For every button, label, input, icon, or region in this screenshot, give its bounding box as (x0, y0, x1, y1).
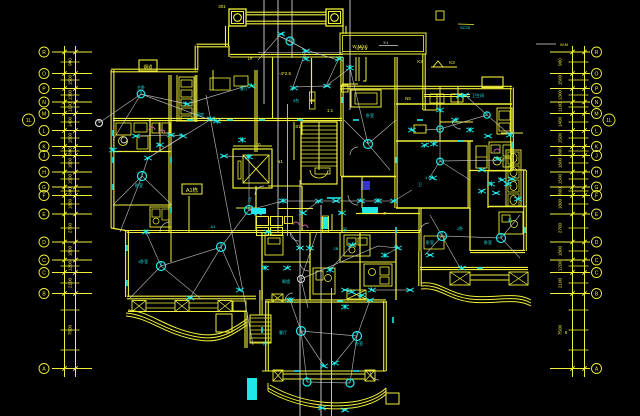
svg-text:1500: 1500 (558, 132, 563, 143)
svg-text:D: D (595, 240, 599, 246)
svg-text:1800: 1800 (558, 245, 563, 256)
svg-text:D: D (42, 240, 46, 246)
svg-text:卧室: 卧室 (355, 340, 363, 346)
svg-text:W.M: W.M (560, 42, 568, 47)
svg-text:7500: 7500 (558, 324, 563, 335)
svg-text:N: N (595, 100, 599, 106)
svg-text:H: H (42, 170, 46, 176)
svg-text:2卧: 2卧 (457, 225, 463, 231)
svg-text:1500: 1500 (558, 173, 563, 184)
svg-text:1500: 1500 (68, 173, 73, 184)
svg-text:-4*2.5: -4*2.5 (355, 46, 368, 51)
svg-text:800: 800 (558, 147, 563, 155)
svg-text:C: C (595, 271, 599, 277)
svg-text:卧室: 卧室 (484, 239, 492, 245)
svg-text:3台: 3台 (293, 97, 299, 103)
svg-text:主卧: 主卧 (137, 84, 145, 90)
svg-text:卧室: 卧室 (135, 182, 143, 188)
svg-text:2100: 2100 (68, 277, 73, 288)
svg-text:A1栋: A1栋 (186, 186, 199, 194)
svg-text:1100: 1100 (558, 102, 563, 112)
svg-text:1300: 1300 (558, 89, 563, 100)
svg-text:1卧室: 1卧室 (138, 258, 148, 264)
svg-text:800: 800 (68, 187, 73, 195)
svg-text:900: 900 (558, 58, 563, 66)
svg-text:厨: 厨 (343, 226, 347, 232)
svg-text:客厅: 客厅 (240, 85, 248, 91)
svg-text:1800: 1800 (558, 198, 563, 209)
svg-text:K3: K3 (449, 60, 455, 65)
svg-text:1400: 1400 (68, 116, 73, 127)
svg-text:1600: 1600 (68, 157, 73, 168)
svg-text:301: 301 (218, 4, 226, 9)
svg-text:N: N (42, 100, 46, 106)
svg-text:C: C (42, 271, 46, 277)
svg-text:1100: 1100 (68, 102, 73, 112)
svg-text:卫生间: 卫生间 (472, 92, 484, 98)
svg-text:S1: S1 (295, 124, 301, 129)
svg-text:2B: 2B (334, 246, 339, 251)
svg-text:F: F (595, 194, 598, 200)
svg-text:O: O (595, 72, 599, 78)
svg-text:2100: 2100 (558, 277, 563, 288)
svg-text:卫: 卫 (418, 182, 422, 187)
svg-text:厨: 厨 (508, 217, 512, 223)
svg-text:7500: 7500 (68, 324, 73, 335)
svg-text:卧室: 卧室 (366, 112, 374, 118)
svg-text:K2: K2 (417, 59, 423, 64)
svg-text:-4*2.5: -4*2.5 (279, 71, 292, 76)
svg-text:H: H (595, 170, 599, 176)
svg-text:SC25: SC25 (460, 25, 471, 30)
svg-text:F: F (42, 194, 45, 200)
svg-text:1400: 1400 (558, 116, 563, 127)
svg-text:N5: N5 (405, 96, 411, 101)
svg-text:1:6: 1:6 (425, 175, 431, 180)
svg-text:M: M (594, 112, 598, 118)
svg-text:1L: 1L (606, 118, 612, 124)
svg-text:1800: 1800 (68, 198, 73, 209)
svg-text:砌墙: 砌墙 (282, 278, 290, 284)
svg-text:2700: 2700 (68, 222, 73, 233)
svg-text:800: 800 (68, 147, 73, 155)
svg-text:C: C (42, 258, 46, 264)
svg-text:厅: 厅 (248, 197, 252, 202)
svg-text:L: L (595, 129, 598, 135)
svg-text:L: L (43, 129, 46, 135)
svg-text:1#: 1# (247, 56, 253, 61)
svg-text:R: R (595, 50, 599, 56)
svg-text:K1: K1 (384, 40, 390, 45)
svg-text:P: P (383, 211, 386, 216)
svg-text:R: R (42, 50, 46, 56)
svg-text:A1: A1 (211, 224, 217, 229)
svg-text:1600: 1600 (558, 157, 563, 168)
svg-text:1L: 1L (26, 118, 32, 124)
svg-text:N1: N1 (277, 159, 283, 164)
svg-text:O: O (42, 72, 46, 78)
svg-text:1200: 1200 (68, 260, 73, 271)
svg-text:10: 10 (255, 142, 261, 147)
svg-text:卧室: 卧室 (426, 239, 434, 245)
svg-text:1200: 1200 (558, 260, 563, 271)
svg-text:厨房: 厨房 (196, 111, 204, 117)
svg-text:1500: 1500 (68, 132, 73, 143)
svg-text:900: 900 (68, 58, 73, 66)
svg-text:800: 800 (558, 187, 563, 195)
svg-text:梯: 梯 (263, 340, 267, 346)
svg-text:1500: 1500 (558, 74, 563, 85)
svg-text:C: C (595, 258, 599, 264)
svg-text:1800: 1800 (68, 245, 73, 256)
svg-text:客厅: 客厅 (279, 329, 287, 335)
svg-text:M: M (42, 112, 46, 118)
svg-text:1500: 1500 (68, 74, 73, 85)
svg-text:1300: 1300 (68, 89, 73, 100)
svg-text:1:1: 1:1 (327, 108, 334, 113)
svg-text:2700: 2700 (558, 222, 563, 233)
svg-text:烟道: 烟道 (144, 64, 153, 71)
